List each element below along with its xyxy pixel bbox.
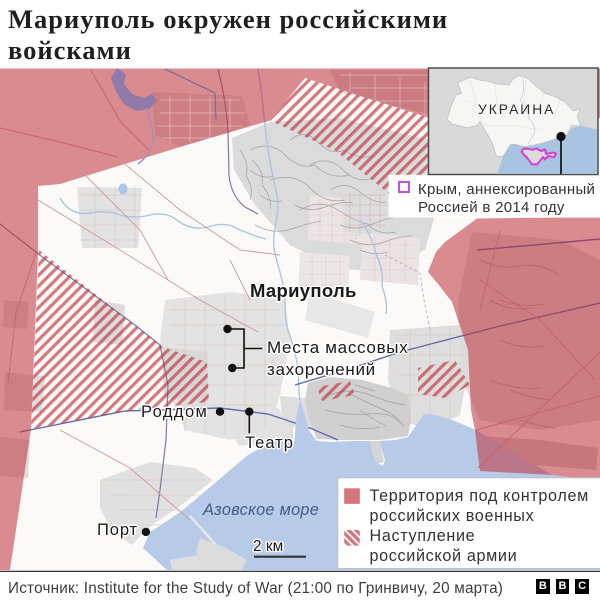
svg-text:УКРАИНА: УКРАИНА: [478, 102, 555, 117]
